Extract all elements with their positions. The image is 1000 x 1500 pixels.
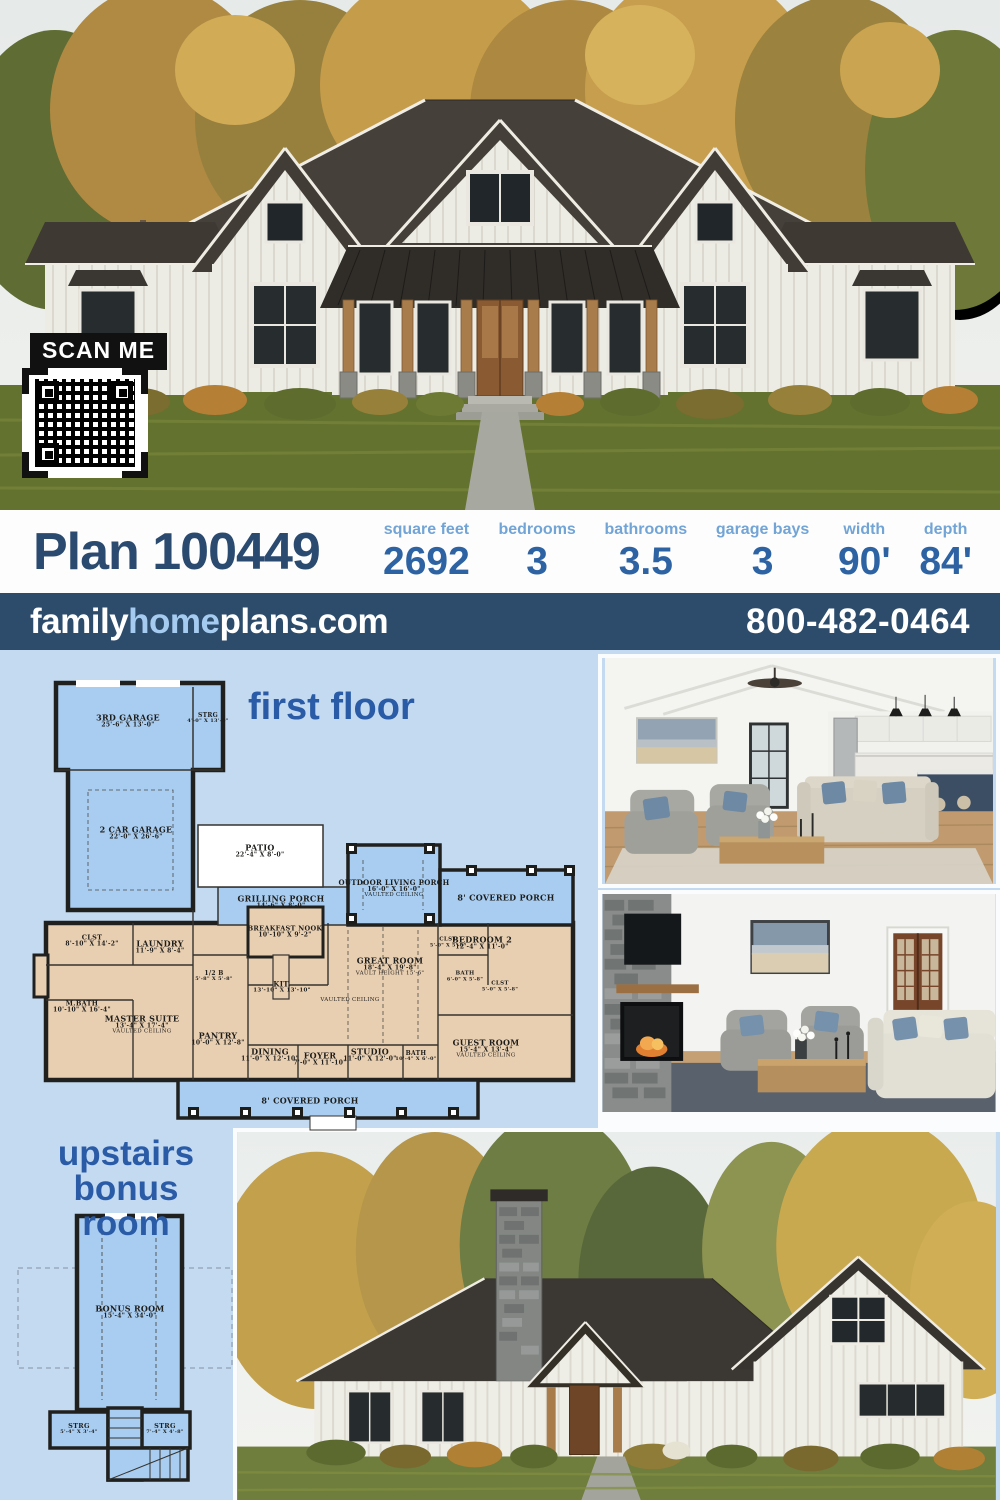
room-label: KIT.13'-10" X 13'-10" — [253, 980, 310, 993]
room-label: BATH6'-0" X 5'-8" — [447, 971, 483, 982]
tub-bump — [34, 955, 48, 997]
interior-photo-great-room — [598, 654, 1000, 888]
brand-bar: familyhomeplans.com 800-482-0464 — [0, 593, 1000, 650]
room-label: CLST5'-0" X 5'-8" — [430, 937, 466, 948]
interior-2-illustration — [602, 894, 996, 1112]
mantel — [616, 984, 698, 993]
site-plans: plans.com — [220, 602, 389, 641]
bonus-room-plan: BONUS ROOM15'-4" X 34'-0" STRG5'-4" X 3'… — [10, 1200, 240, 1495]
room-label: STUDIO11'-0" X 12'-0" — [343, 1047, 396, 1062]
room-label: PATIO22'-4" X 8'-0" — [236, 843, 285, 858]
room-label: 3RD GARAGE25'-6" X 13'-0" — [96, 713, 160, 728]
stat-bedrooms: bedrooms 3 — [498, 522, 575, 581]
room-label: CLST5'-0" X 5'-8" — [482, 981, 518, 992]
room-label: MASTER SUITE13'-4" X 17'-4"VAULTED CEILI… — [105, 1014, 179, 1035]
qr-finder-icon — [111, 381, 133, 403]
room-label: GRILLING PORCH14'-6" X 8'-0" — [238, 894, 325, 909]
plan-stats: square feet 2692 bedrooms 3 bathrooms 3.… — [373, 522, 1000, 581]
room-label: BATH10'-4" X 6'-0" — [395, 1051, 436, 1063]
stat-garage-bays: garage bays 3 — [716, 522, 809, 581]
tv — [624, 914, 681, 965]
stat-square-feet: square feet 2692 — [383, 522, 470, 581]
rear-elevation-illustration — [237, 1132, 996, 1500]
room-label: 8' COVERED PORCH — [261, 1097, 358, 1106]
room-label: PANTRY10'-0" X 12'-8" — [191, 1031, 244, 1046]
room-label: FOYER7'-0" X 11'-10" — [293, 1051, 346, 1066]
room-label: STRG4'-0" X 13'-0" — [187, 713, 228, 725]
room-label: 2 CAR GARAGE22'-0" X 26'-6" — [100, 825, 173, 840]
room-label: 8' COVERED PORCH — [457, 894, 554, 903]
qr-finder-icon — [37, 443, 59, 465]
flyer-page: SCAN ME Plan 100449 square feet 2692 bed… — [0, 0, 1000, 1500]
interior-photo-fireplace — [598, 890, 1000, 1116]
sofa — [868, 1010, 996, 1098]
sofa — [797, 776, 939, 842]
room-label: BONUS ROOM15'-4" X 34'-0" — [95, 1304, 164, 1319]
interior-1-illustration — [602, 658, 996, 884]
room-label: M.BATH10'-10" X 16'-4" — [53, 1000, 111, 1013]
stat-depth: depth 84' — [919, 522, 972, 581]
bonus-title-line1: upstairs — [26, 1136, 226, 1171]
stat-width: width 90' — [838, 522, 891, 581]
room-label: CLST8'-10" X 14'-2" — [65, 934, 118, 947]
scan-me-tag: SCAN ME — [30, 333, 167, 370]
website-link[interactable]: familyhomeplans.com — [30, 602, 388, 642]
room-label: LAUNDRY11'-9" X 8'-4" — [136, 939, 185, 954]
rear-door — [570, 1385, 600, 1454]
porch-steps — [310, 1116, 356, 1130]
bonus-title-line2: bonus room — [26, 1171, 226, 1241]
site-home: home — [128, 602, 219, 641]
room-label: BREAKFAST NOOK10'-10" X 9'-2" — [248, 925, 323, 938]
qr-finder-icon — [37, 381, 59, 403]
rear-elevation-photo — [233, 1128, 1000, 1500]
qr-code — [22, 368, 148, 478]
phone-number: 800-482-0464 — [746, 602, 970, 642]
room-label: GUEST ROOM15'-4" X 13'-4"VAULTED CEILING — [453, 1038, 520, 1059]
front-elevation-photo: SCAN ME — [0, 0, 1000, 510]
room-label: OUTDOOR LIVING PORCH16'-0" X 16'-0"VAULT… — [338, 879, 449, 899]
room-label: 1/2 B5'-8" X 5'-8" — [195, 971, 233, 983]
room-label: GREAT ROOM18'-4" X 19'-8"VAULT HEIGHT 15… — [356, 956, 425, 977]
stats-bar: Plan 100449 square feet 2692 bedrooms 3 … — [0, 510, 1000, 593]
first-floor-title: first floor — [248, 686, 415, 729]
front-elevation-illustration — [0, 0, 1000, 510]
room-label: VAULTED CEILING — [320, 998, 379, 1004]
room-label: DINING11'-0" X 12'-10" — [241, 1047, 299, 1062]
site-family: family — [30, 602, 128, 641]
room-label: STRG7'-4" X 4'-8" — [146, 1423, 184, 1435]
qr-pattern — [35, 379, 135, 467]
room-label: STRG5'-4" X 3'-4" — [60, 1423, 98, 1435]
stat-bathrooms: bathrooms 3.5 — [605, 522, 688, 581]
plan-number-title: Plan 100449 — [33, 522, 373, 582]
bonus-title: upstairs bonus room — [26, 1136, 226, 1241]
bonus-room-drawing — [10, 1200, 240, 1495]
